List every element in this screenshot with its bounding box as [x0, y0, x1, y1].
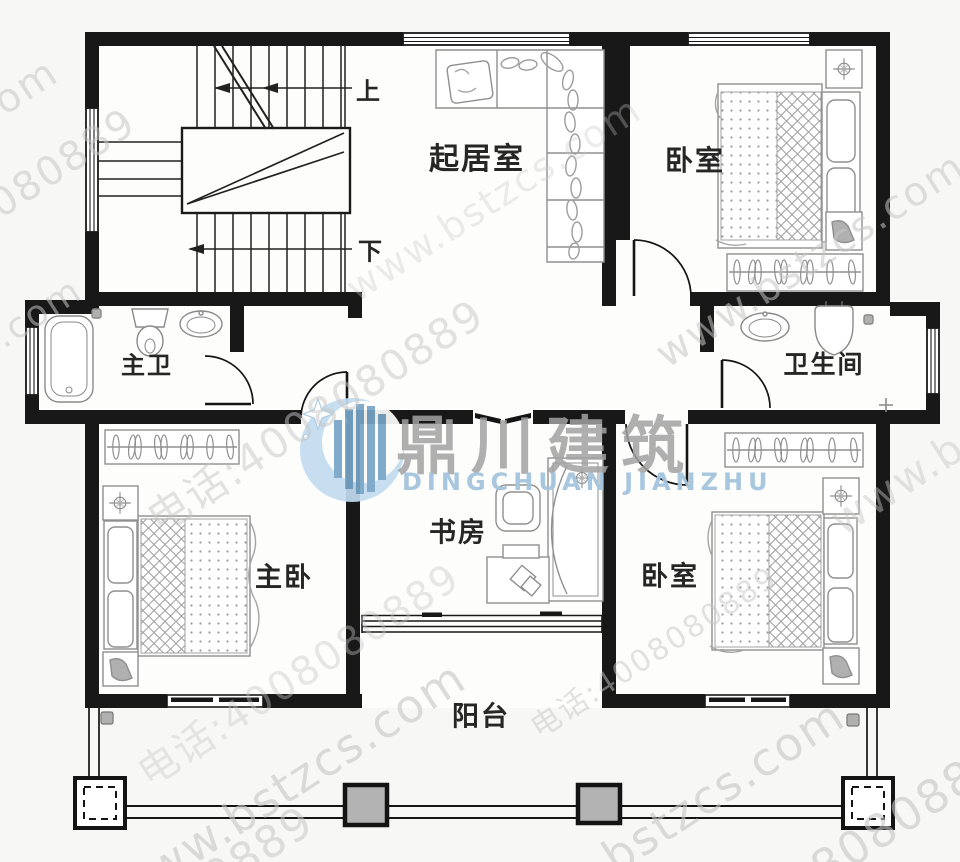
- downspout: [101, 712, 113, 724]
- balcony-column: [578, 785, 620, 823]
- room-label-bedroom-bottom-right: 卧室: [641, 555, 699, 594]
- floor-plan-canvas: www.bstzcs.com 电话:4008080889 电话:40080808…: [0, 0, 960, 862]
- sink-icon: [180, 311, 222, 337]
- window-living-top: [403, 33, 570, 45]
- brand-latin-text: DINGCHUAN JIANZHU: [402, 468, 773, 496]
- stair-label-up: 上: [356, 72, 382, 107]
- room-label-study: 书房: [429, 511, 487, 550]
- nightstand: [826, 50, 862, 88]
- balcony-corner-post: [75, 778, 125, 828]
- window-bedroom-br-south: [705, 695, 790, 707]
- room-label-balcony: 阳台: [452, 695, 510, 734]
- stair-label-down: 下: [358, 232, 384, 267]
- room-label-bathroom: 卫生间: [783, 345, 864, 381]
- window-bathroom: [927, 328, 939, 394]
- floor-drain: [864, 315, 873, 324]
- floor-drain: [92, 309, 101, 318]
- room-label-master-bedroom: 主卧: [255, 556, 313, 595]
- wardrobe: [725, 433, 863, 467]
- room-label-bedroom-top-right: 卧室: [665, 139, 725, 179]
- room-label-living: 起居室: [429, 134, 525, 178]
- nightstand: [823, 648, 859, 684]
- window-bedroom-top: [688, 33, 810, 45]
- nightstand: [103, 486, 138, 520]
- nightstand: [103, 652, 138, 686]
- bathtub: [45, 316, 93, 402]
- bed: [104, 516, 259, 656]
- room-label-master-bath: 主卫: [121, 346, 173, 381]
- balcony-column: [345, 785, 387, 825]
